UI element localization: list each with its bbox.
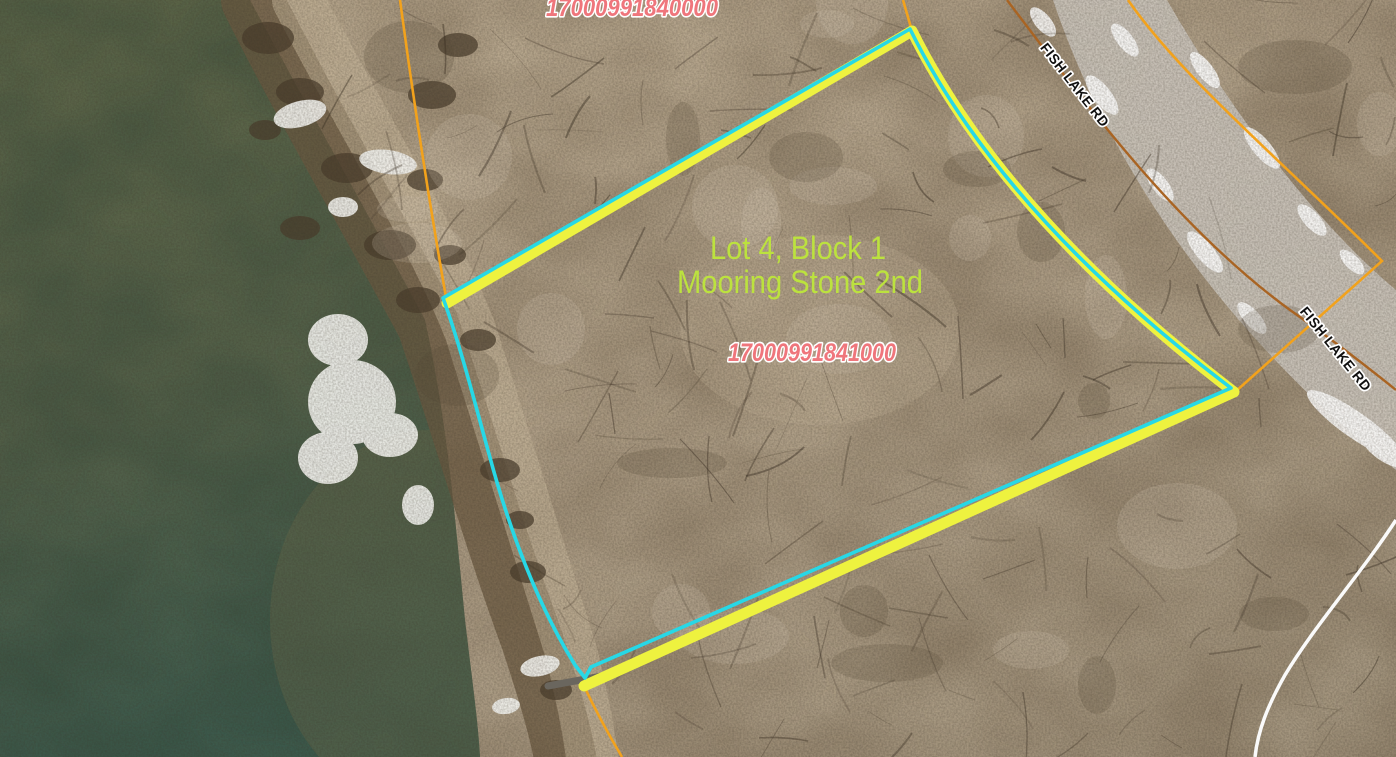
lot-label-line2: Mooring Stone 2nd	[677, 264, 923, 300]
parcel-id-label: 17000991841000	[728, 339, 896, 367]
map-canvas[interactable]: FISH LAKE RD FISH LAKE RD 17000991840000…	[0, 0, 1396, 757]
aerial-imagery-layer: FISH LAKE RD FISH LAKE RD 17000991840000…	[0, 0, 1396, 757]
lot-label-line1: Lot 4, Block 1	[710, 230, 886, 266]
adjacent-parcel-id-label: 17000991840000	[546, 0, 718, 22]
